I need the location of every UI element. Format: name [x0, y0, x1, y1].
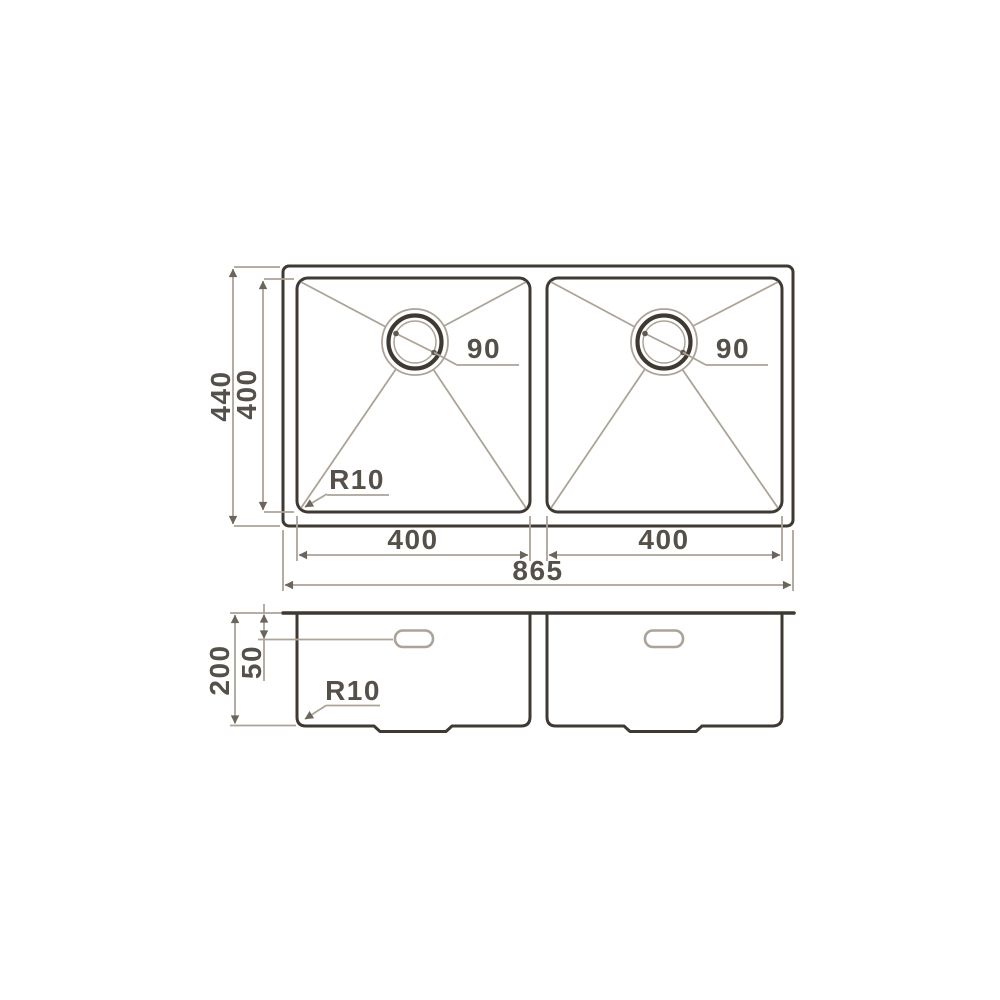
cross-line [444, 282, 526, 326]
dim-label-drain1-diameter: 90 [467, 333, 501, 364]
cross-line [693, 282, 778, 326]
dim-label-overflow-offset: 50 [236, 645, 267, 679]
sink-technical-drawing: 90 90 R10 440 [0, 0, 1000, 1000]
overflow-hole-bowl2 [645, 631, 683, 648]
side-view: 200 50 R10 [204, 604, 794, 732]
drain-2: 90 [631, 309, 768, 375]
dim-label-corner-radius-top: R10 [329, 464, 385, 495]
drain-1: 90 [382, 309, 519, 375]
leader-line [305, 706, 326, 720]
dim-overflow-offset-50: 50 [236, 604, 393, 681]
dim-label-bowl-height: 200 [204, 644, 235, 695]
diameter-line [645, 334, 683, 353]
dim-overall-width-865: 865 [283, 530, 793, 591]
top-view: 90 90 R10 440 [205, 266, 793, 591]
dim-label-drain2-diameter: 90 [716, 333, 750, 364]
dim-label-corner-radius-side: R10 [325, 675, 381, 706]
bowl-2-outline [547, 278, 782, 512]
corner-radius-callout-side: R10 [305, 675, 381, 719]
dim-bowl-depth-400: 400 [231, 279, 294, 512]
diameter-end-dot [393, 331, 399, 337]
cross-line [682, 369, 778, 508]
cross-line [551, 282, 635, 327]
dim-label-bowl2-width: 400 [638, 524, 689, 555]
dim-label-bowl1-width: 400 [387, 524, 438, 555]
cross-line [551, 369, 645, 508]
overflow-hole-bowl1 [395, 631, 433, 648]
dim-label-overall-width: 865 [512, 555, 563, 586]
cross-line [301, 282, 386, 327]
cross-line [433, 369, 526, 508]
sink-technical-drawing-page: 90 90 R10 440 [0, 0, 1000, 1000]
diameter-line [396, 334, 434, 353]
dim-label-bowl-depth: 400 [231, 368, 262, 419]
diameter-end-dot [642, 331, 648, 337]
corner-radius-callout-top: R10 [305, 464, 389, 507]
